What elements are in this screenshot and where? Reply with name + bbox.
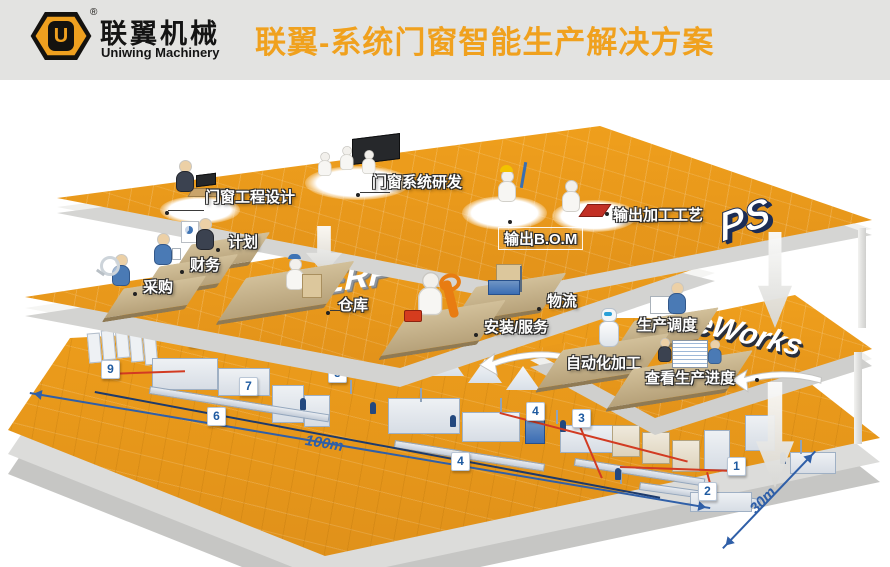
floor-marker: 4 (526, 402, 545, 421)
floor-worker-figure (300, 398, 306, 410)
progress-board (672, 340, 708, 368)
leader-dot (216, 248, 220, 252)
station-auto-machining-label: 自动化加工 (566, 352, 641, 373)
leader-dot (133, 292, 137, 296)
progress-viewer-figure (708, 340, 722, 364)
station-engineering-label: 门窗工程设计 (205, 186, 295, 207)
header-bar: U ® 联翼机械 Uniwing Machinery 联翼-系统门窗智能生产解决… (0, 0, 890, 80)
floor-worker-figure (615, 468, 621, 480)
post (800, 440, 802, 454)
leader-dot (180, 270, 184, 274)
station-finance-label: 财务 (190, 254, 220, 275)
station-dispatch-label: 生产调度 (637, 314, 697, 335)
station-research-label: 门窗系统研发 (372, 171, 462, 192)
post (350, 380, 352, 394)
station-purchase-label: 采购 (143, 276, 173, 297)
station-logistics-label: 物流 (547, 290, 577, 311)
bom-worker-figure (498, 170, 516, 202)
page-title: 联翼-系统门窗智能生产解决方案 (255, 17, 714, 62)
support-pillar (858, 228, 866, 328)
brand-name-en: Uniwing Machinery (101, 45, 219, 60)
machine-rack (101, 329, 117, 360)
dispatcher-figure (668, 282, 686, 314)
post (556, 410, 558, 424)
post (420, 388, 422, 402)
floor-marker: 2 (698, 482, 717, 501)
progress-viewer-figure (658, 338, 672, 362)
cup-icon (172, 248, 181, 260)
floor-marker: 7 (239, 377, 258, 396)
station-warehouse-label: 仓库 (338, 294, 368, 315)
hardhat-icon (500, 165, 513, 172)
floor-marker: 4 (451, 452, 470, 471)
brand-logo: U ® (30, 7, 96, 65)
leader-dot (605, 212, 609, 216)
station-service-label: 安装/服务 (484, 316, 548, 337)
forklift-icon (488, 264, 528, 298)
meeting-figure (318, 152, 332, 176)
figure-body (176, 171, 194, 192)
machine-rack (87, 332, 103, 363)
machine (612, 425, 640, 457)
infographic-page: U ® 联翼机械 Uniwing Machinery 联翼-系统门窗智能生产解决… (0, 0, 890, 567)
leader-dot (537, 307, 541, 311)
leader-dot (356, 193, 360, 197)
machine (642, 432, 670, 464)
leader-dot (508, 220, 512, 224)
leader-dot (165, 211, 169, 215)
finance-figure (154, 233, 172, 265)
support-pillar (854, 352, 862, 444)
service-figure (418, 272, 442, 315)
leader-line (330, 310, 340, 311)
station-craft-label: 输出加工工艺 (613, 204, 703, 225)
machine (152, 358, 218, 390)
solution-diagram: 100m 30m 1 2 3 4 4 5 6 7 8 9 eWorks ERP … (0, 80, 890, 567)
station-bom-label: 输出B.O.M (498, 227, 583, 250)
leader-dot (755, 378, 759, 382)
floor-marker: 6 (207, 407, 226, 426)
logo-letter: U (48, 21, 74, 51)
designer-figure (176, 160, 194, 192)
planner-figure (196, 218, 214, 250)
floor-marker: 3 (572, 409, 591, 428)
meeting-figure (340, 146, 354, 170)
floor-worker-figure (450, 415, 456, 427)
magnifier-icon (100, 256, 120, 276)
station-plan-label: 计划 (228, 231, 258, 252)
craft-writer-figure (562, 180, 580, 212)
floor-marker: 9 (101, 360, 120, 379)
leader-line (168, 210, 204, 211)
robot-figure (598, 308, 622, 356)
registered-mark: ® (90, 7, 97, 18)
station-progress-label: 查看生产进度 (645, 367, 735, 388)
floor-marker: 1 (727, 457, 746, 476)
cap-icon (288, 254, 301, 259)
leader-line (360, 192, 390, 193)
toolbox-icon (404, 310, 422, 322)
handtruck-boxes (302, 274, 322, 298)
leader-dot (326, 311, 330, 315)
floor-worker-figure (370, 402, 376, 414)
post (500, 398, 502, 412)
leader-dot (474, 333, 478, 337)
